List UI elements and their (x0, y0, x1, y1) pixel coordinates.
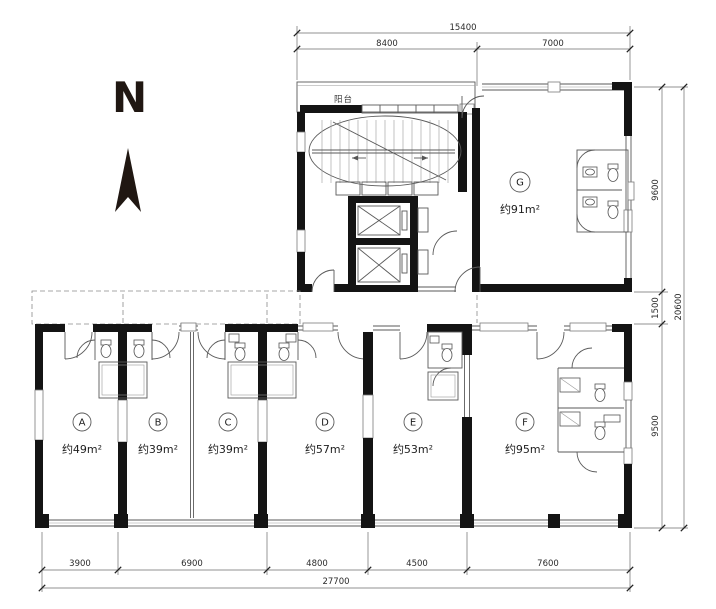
room-g-area: 约91m² (500, 203, 540, 216)
door-arc (577, 214, 595, 232)
toilet-icon (608, 201, 618, 219)
lower-block: A 约49m² B 约39m² C 约39m² D 约57m² E 约53m² … (35, 323, 632, 528)
room-e-area: 约53m² (393, 443, 433, 456)
window (548, 82, 560, 92)
door-arc (312, 270, 334, 292)
window (363, 395, 373, 438)
north-label: N (112, 73, 147, 122)
north-arrow-icon (115, 148, 141, 212)
floor-plan: 15400 8400 7000 3900 6900 4800 4500 7600… (0, 0, 716, 609)
north-arrow: N (112, 73, 147, 212)
room-d-area: 约57m² (305, 443, 345, 456)
wall-c-d (258, 332, 267, 518)
door-arc-e (400, 332, 427, 359)
stair-run-line (333, 122, 446, 180)
dim-right-seg-1: 9600 (651, 179, 661, 201)
dim-bottom-seg-4: 4500 (406, 559, 428, 569)
room-D: D 约57m² (305, 413, 345, 456)
window (628, 182, 634, 200)
wall-d-e (363, 332, 373, 518)
window (258, 400, 267, 442)
room-c-area: 约39m² (208, 443, 248, 456)
toilet-icon (442, 344, 452, 362)
door-arc (577, 150, 595, 168)
room-C: C 约39m² (208, 413, 248, 456)
door-arc (577, 452, 597, 472)
window (624, 448, 632, 464)
bathroom-e (428, 332, 462, 400)
upper-block: 阳台 (297, 82, 628, 292)
door-arc (433, 368, 451, 386)
room-g-id: G (516, 178, 524, 189)
window (297, 230, 305, 252)
door-arc-a (65, 332, 92, 359)
room-d-id: D (321, 418, 329, 429)
room-F: F 约95m² (505, 413, 545, 456)
door-arc (433, 231, 457, 255)
room-E: E 约53m² (393, 413, 433, 456)
wall-b-c (191, 332, 194, 518)
window (624, 382, 632, 400)
wall-e-f (462, 332, 472, 518)
toilet-icon (279, 343, 289, 361)
toilet-icon (235, 343, 245, 361)
dimension-right: 9600 1500 9500 20600 (634, 84, 688, 531)
dim-bottom-seg-2: 6900 (181, 559, 203, 569)
wall-a-b (118, 332, 127, 518)
toilet-icon (595, 384, 605, 402)
dim-bottom-seg-3: 4800 (306, 559, 328, 569)
toilet-icon (101, 340, 111, 358)
dim-top-seg-1: 8400 (376, 39, 398, 49)
dim-top-seg-2: 7000 (542, 39, 564, 49)
corridor (32, 291, 477, 324)
room-A: A 约49m² (62, 413, 102, 456)
room-c-id: C (225, 418, 232, 429)
toilet-icon (608, 164, 618, 182)
room-b-id: B (155, 418, 162, 429)
room-b-area: 约39m² (138, 443, 178, 456)
room-f-area: 约95m² (505, 443, 545, 456)
elevators (348, 196, 457, 292)
dimension-top: 15400 8400 7000 (294, 23, 633, 86)
dimension-bottom: 3900 6900 4800 4500 7600 27700 (39, 532, 633, 592)
room-f-id: F (522, 418, 528, 429)
dim-bottom-seg-1: 3900 (69, 559, 91, 569)
door-arc-f (537, 332, 564, 359)
bathroom-f (558, 348, 624, 472)
elevator-door (418, 250, 428, 274)
duct-shaft (428, 372, 458, 400)
elevator-shaft-2 (358, 248, 407, 282)
door-arc (207, 340, 225, 358)
window (35, 390, 43, 440)
toilet-icon (134, 340, 144, 358)
canopy-dashed-outline (32, 291, 300, 324)
dim-bottom-total: 27700 (322, 577, 349, 587)
window (181, 323, 196, 331)
dim-right-seg-2: 1500 (651, 297, 661, 319)
room-G: G 约91m² (455, 82, 634, 292)
window (303, 323, 333, 331)
door-arc-d (338, 332, 365, 359)
balcony-label: 阳台 (334, 94, 353, 105)
door-arc (572, 348, 592, 368)
window (570, 323, 606, 331)
room-e-id: E (410, 418, 416, 429)
dim-right-total: 20600 (674, 293, 684, 320)
toilet-icon (595, 422, 605, 440)
dim-top-total: 15400 (449, 23, 476, 33)
elevator-door (418, 208, 428, 232)
door-arc (152, 340, 170, 358)
window (480, 323, 528, 331)
dim-right-seg-3: 9500 (651, 415, 661, 437)
bottom-window-wall (35, 514, 632, 528)
dim-bottom-seg-5: 7600 (537, 559, 559, 569)
door-arc (298, 340, 316, 358)
floor-plan-canvas: 15400 8400 7000 3900 6900 4800 4500 7600… (0, 0, 716, 609)
room-B: B 约39m² (138, 413, 178, 456)
stairs (309, 116, 461, 195)
room-a-area: 约49m² (62, 443, 102, 456)
window (118, 400, 127, 442)
window (297, 132, 305, 152)
room-a-id: A (79, 418, 86, 429)
elevator-shaft-1 (358, 206, 407, 235)
